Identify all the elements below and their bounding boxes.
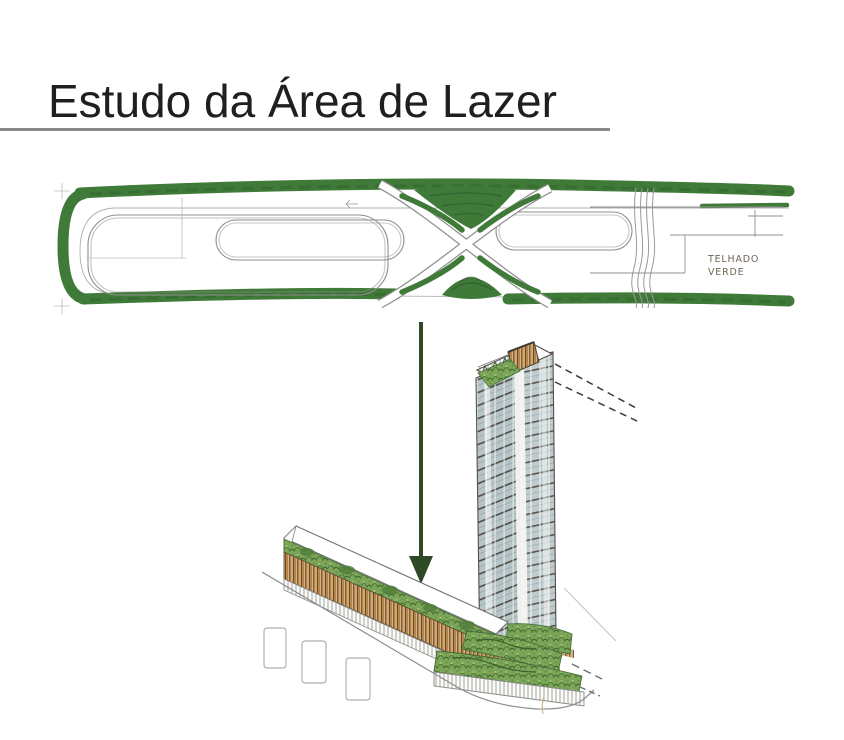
dashed-projection-lines — [555, 364, 639, 422]
break-lines — [632, 188, 655, 308]
page-title: Estudo da Área de Lazer — [48, 74, 557, 128]
tower-axonometric-sketch — [262, 336, 657, 738]
podium-base-openings — [264, 628, 370, 700]
plan-annotation-line2: VERDE — [708, 267, 744, 278]
title-underline — [0, 128, 610, 131]
leisure-area-plan-sketch: TELHADO VERDE — [50, 158, 795, 323]
presentation-page: Estudo da Área de Lazer — [0, 0, 844, 740]
plan-annotation-line1: TELHADO — [707, 254, 759, 265]
running-track-loops — [88, 212, 632, 295]
